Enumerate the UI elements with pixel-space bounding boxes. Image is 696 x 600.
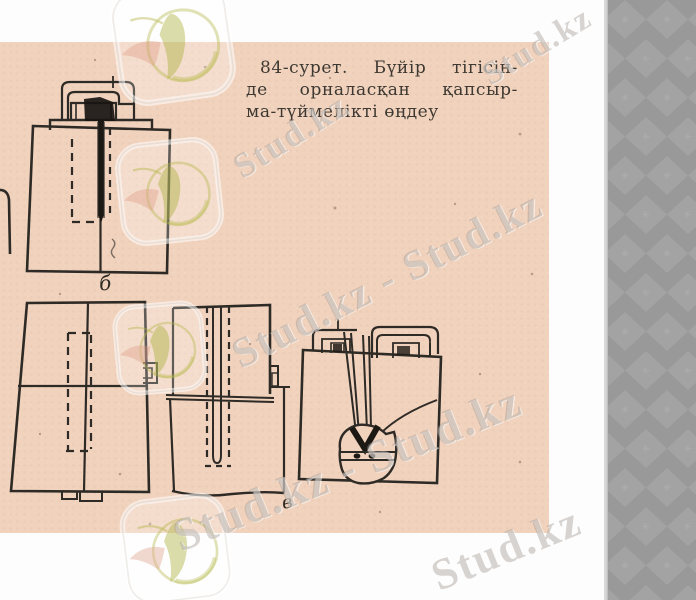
scanned-page-view: 84-сурет. Бүйір тігісін- де орналасқан қ… — [0, 0, 696, 600]
diagram-cut-left — [0, 190, 10, 254]
caption-line-1: 84-сурет. Бүйір тігісін- — [246, 57, 518, 79]
background-pattern-panel — [604, 0, 696, 600]
diagram-d-fastener-section — [299, 319, 441, 483]
argyle-pattern — [604, 0, 696, 600]
figure-label-b: б — [98, 272, 112, 293]
figure-caption: 84-сурет. Бүйір тігісін- де орналасқан қ… — [246, 57, 518, 123]
diagram-c-placket-back — [166, 305, 290, 495]
scanned-document-page: 84-сурет. Бүйір тігісін- де орналасқан қ… — [0, 42, 549, 533]
diagram-b-flat-view — [11, 302, 157, 501]
caption-line-3: ма-түймелікті өңдеу — [246, 101, 518, 123]
caption-line-2: де орналасқан қапсыр- — [246, 79, 518, 101]
diagram-a-placket-front — [27, 76, 170, 273]
